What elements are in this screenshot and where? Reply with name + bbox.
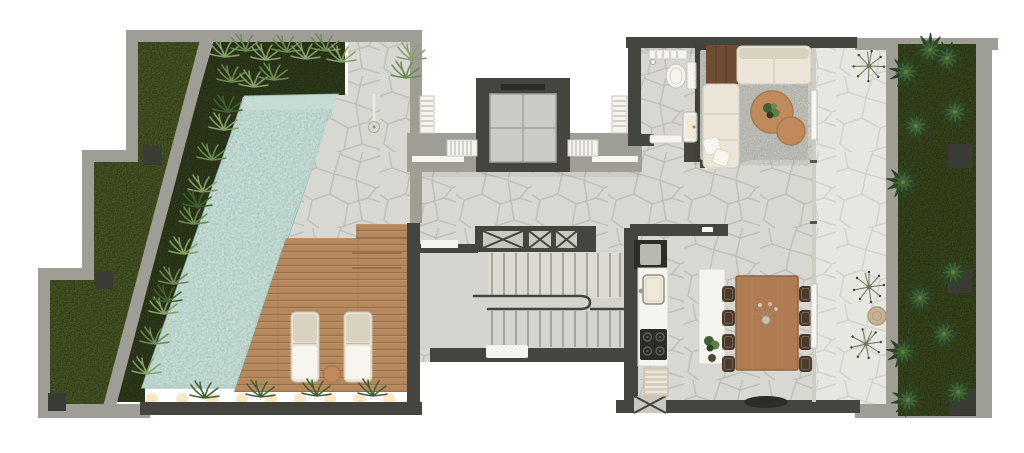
garden-wall-right	[976, 42, 992, 418]
bathroom-sink	[683, 112, 697, 142]
wood-sideboard	[706, 45, 738, 84]
kitchen-top-wall	[630, 224, 728, 236]
x-braced-vent	[556, 231, 577, 248]
louver-vent	[420, 96, 434, 133]
x-braced-vent	[634, 396, 666, 413]
door-handle	[810, 160, 817, 163]
faucet-icon	[639, 289, 644, 294]
floor-plan	[0, 0, 1024, 453]
dining-chair	[799, 356, 812, 372]
sun-lounger	[291, 312, 319, 382]
deck-step-edge	[356, 237, 415, 239]
dining-chair	[722, 286, 735, 302]
louver-vent	[447, 140, 477, 156]
wall-post	[48, 393, 66, 411]
elevator-vent	[501, 84, 545, 90]
cooktop	[640, 329, 667, 360]
dining-chair	[799, 286, 812, 302]
towel-rack	[644, 368, 668, 396]
louver-vent	[612, 96, 627, 133]
dining-set	[722, 276, 812, 372]
shower-head-icon	[651, 60, 656, 65]
stair-bottom-wall	[430, 348, 632, 362]
outdoor-terrace-floor	[813, 48, 886, 406]
garden-wall-left	[886, 42, 898, 418]
wall	[407, 223, 420, 403]
deck-step-edge	[352, 267, 402, 269]
sun-lounger	[344, 312, 372, 382]
louver-vent	[568, 140, 598, 156]
toilet	[666, 62, 696, 89]
bench	[421, 240, 458, 248]
dining-chair	[799, 334, 812, 350]
bathroom-door	[650, 135, 682, 143]
elevator	[476, 78, 570, 172]
wall-ledge	[592, 156, 638, 162]
faucet-icon	[693, 126, 696, 129]
living-room	[700, 45, 811, 168]
floor-plan-page	[0, 0, 1024, 453]
stair-door	[486, 345, 528, 358]
coffee-table	[777, 117, 805, 145]
dining-chair	[799, 310, 812, 326]
wall-post	[95, 271, 113, 289]
fruit-bowl	[708, 354, 716, 362]
sliding-door	[811, 284, 817, 348]
x-braced-vent	[529, 231, 551, 248]
side-table	[324, 366, 341, 383]
wall-ledge	[412, 156, 464, 162]
door-handle	[702, 227, 713, 232]
wall	[82, 150, 94, 280]
staircase	[420, 250, 632, 350]
bathroom-wall	[628, 37, 641, 142]
deck-step-edge	[352, 252, 402, 254]
dining-chair	[722, 356, 735, 372]
garden-planter	[948, 144, 972, 168]
kitchen-sink	[639, 275, 664, 304]
sliding-door	[811, 90, 817, 140]
wall	[126, 30, 138, 162]
wall-post	[143, 146, 162, 165]
x-braced-vent	[483, 231, 523, 248]
dining-chair	[722, 334, 735, 350]
dining-chair	[722, 310, 735, 326]
rattan-stool	[868, 307, 886, 325]
door-handle	[810, 221, 817, 224]
threshold-arc	[744, 396, 788, 408]
wall	[140, 402, 422, 415]
